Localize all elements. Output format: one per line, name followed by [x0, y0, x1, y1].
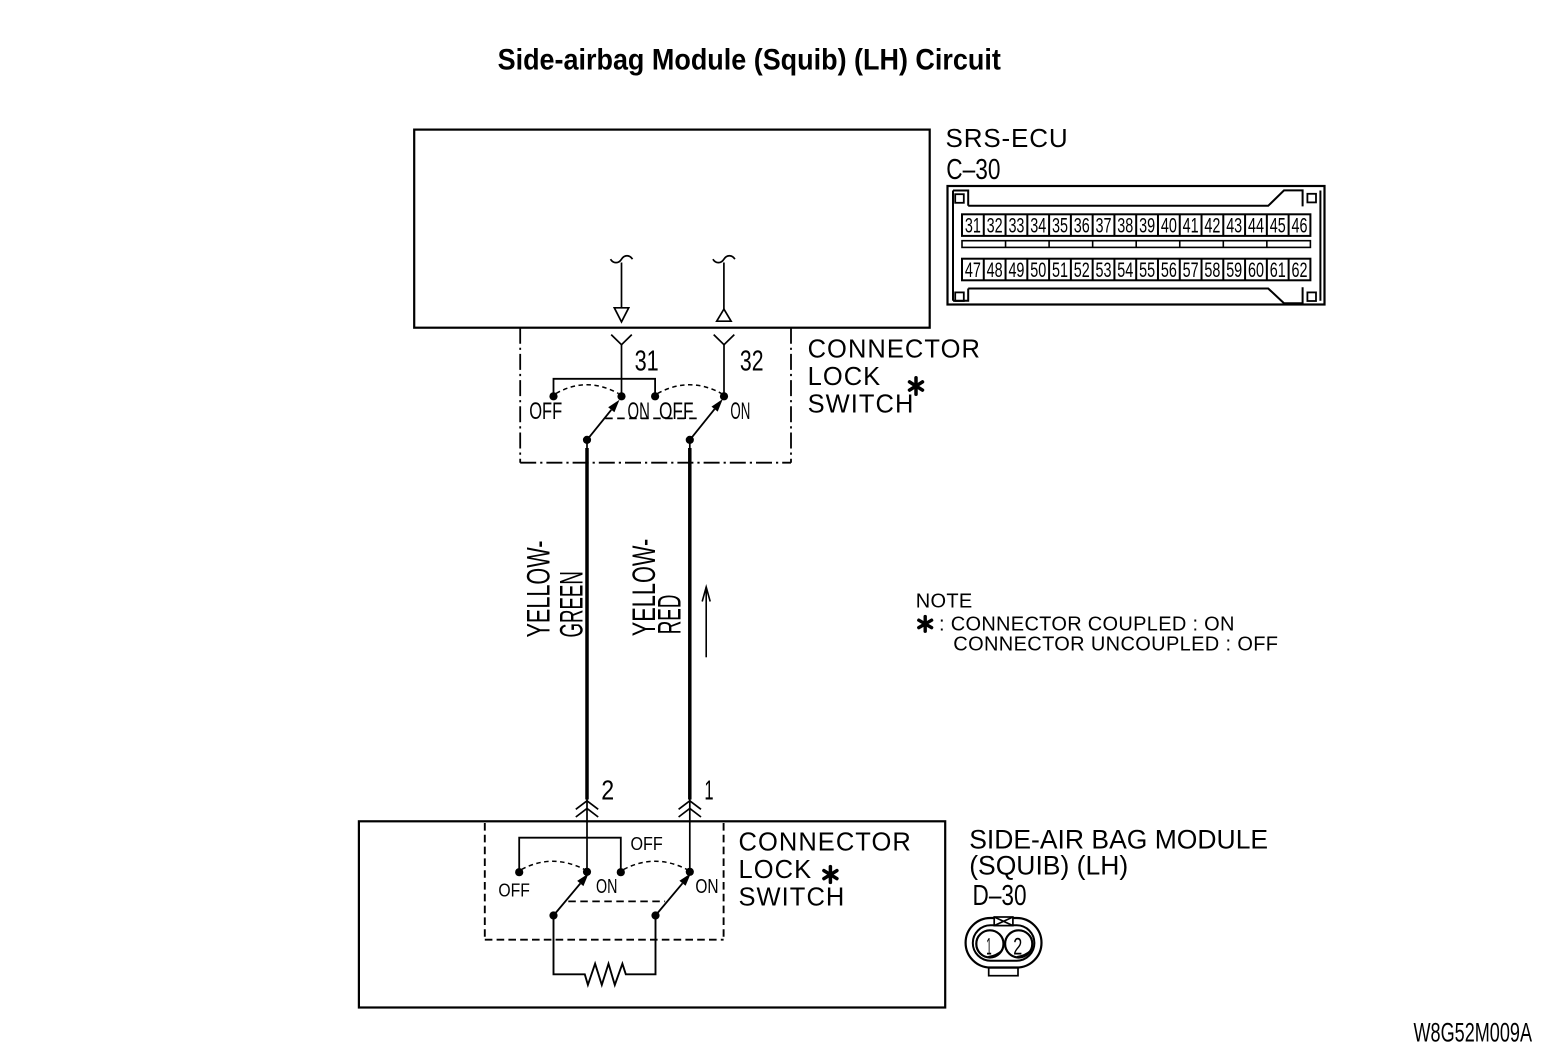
- svg-text:OFF: OFF: [498, 880, 530, 901]
- svg-text:39: 39: [1139, 214, 1155, 238]
- svg-text:40: 40: [1161, 214, 1177, 238]
- svg-text:CONNECTOR: CONNECTOR: [808, 336, 981, 364]
- svg-text:SWITCH: SWITCH: [808, 390, 915, 418]
- svg-text:GREEN: GREEN: [554, 571, 590, 637]
- svg-text:56: 56: [1161, 258, 1177, 282]
- svg-text:36: 36: [1074, 214, 1090, 238]
- svg-text:34: 34: [1030, 214, 1046, 238]
- svg-text:50: 50: [1030, 258, 1046, 282]
- svg-text:43: 43: [1226, 214, 1242, 238]
- svg-text:38: 38: [1117, 214, 1133, 238]
- svg-text:NOTE: NOTE: [916, 590, 973, 612]
- svg-text:31: 31: [965, 214, 981, 238]
- svg-text:YELLOW-: YELLOW-: [521, 541, 557, 638]
- svg-text:60: 60: [1248, 258, 1264, 282]
- svg-text:54: 54: [1117, 258, 1133, 282]
- svg-text:C–30: C–30: [946, 154, 1000, 186]
- svg-text:53: 53: [1096, 258, 1112, 282]
- svg-text:RED: RED: [652, 595, 688, 635]
- svg-text:ON: ON: [695, 876, 718, 898]
- svg-text:32: 32: [740, 346, 764, 378]
- svg-text:LOCK: LOCK: [739, 856, 813, 884]
- svg-text:(SQUIB) (LH): (SQUIB) (LH): [969, 850, 1128, 880]
- svg-text:44: 44: [1248, 214, 1264, 238]
- svg-text:47: 47: [965, 258, 981, 282]
- svg-text:1: 1: [704, 774, 713, 805]
- svg-text:Side-airbag Module (Squib) (LH: Side-airbag Module (Squib) (LH) Circuit: [498, 44, 1001, 77]
- svg-text:OFF: OFF: [529, 398, 562, 425]
- svg-text:2: 2: [1013, 934, 1022, 961]
- svg-text:52: 52: [1074, 258, 1090, 282]
- svg-text:32: 32: [987, 214, 1003, 238]
- svg-text:ON: ON: [596, 876, 617, 898]
- svg-text:58: 58: [1204, 258, 1220, 282]
- svg-text:33: 33: [1008, 214, 1024, 238]
- svg-text:31: 31: [635, 346, 659, 378]
- svg-text:42: 42: [1204, 214, 1220, 238]
- svg-text:51: 51: [1052, 258, 1068, 282]
- svg-text:1: 1: [986, 934, 991, 961]
- svg-text:SWITCH: SWITCH: [739, 884, 846, 912]
- svg-text:49: 49: [1008, 258, 1024, 282]
- svg-text:CONNECTOR: CONNECTOR: [739, 829, 912, 857]
- svg-text:D–30: D–30: [973, 880, 1027, 912]
- svg-text:46: 46: [1292, 214, 1308, 238]
- svg-text:ON: ON: [730, 398, 750, 425]
- svg-text:ON: ON: [628, 398, 650, 425]
- svg-text:61: 61: [1270, 258, 1286, 282]
- svg-text:59: 59: [1226, 258, 1242, 282]
- svg-text:LOCK: LOCK: [808, 363, 882, 391]
- svg-text:2: 2: [601, 774, 614, 805]
- svg-text:41: 41: [1183, 214, 1199, 238]
- svg-text:OFF: OFF: [631, 833, 663, 854]
- svg-text:45: 45: [1270, 214, 1286, 238]
- svg-text:48: 48: [987, 258, 1003, 282]
- svg-text:35: 35: [1052, 214, 1068, 238]
- svg-text:55: 55: [1139, 258, 1155, 282]
- svg-text:: CONNECTOR COUPLED : ON: : CONNECTOR COUPLED : ON: [939, 613, 1235, 635]
- svg-text:CONNECTOR UNCOUPLED : OFF: CONNECTOR UNCOUPLED : OFF: [953, 634, 1278, 656]
- svg-text:37: 37: [1096, 214, 1112, 238]
- svg-text:W8G52M009A: W8G52M009A: [1414, 1018, 1533, 1048]
- svg-text:62: 62: [1292, 258, 1308, 282]
- svg-text:57: 57: [1183, 258, 1199, 282]
- svg-text:OFF: OFF: [659, 398, 694, 425]
- svg-text:SRS-ECU: SRS-ECU: [946, 123, 1069, 153]
